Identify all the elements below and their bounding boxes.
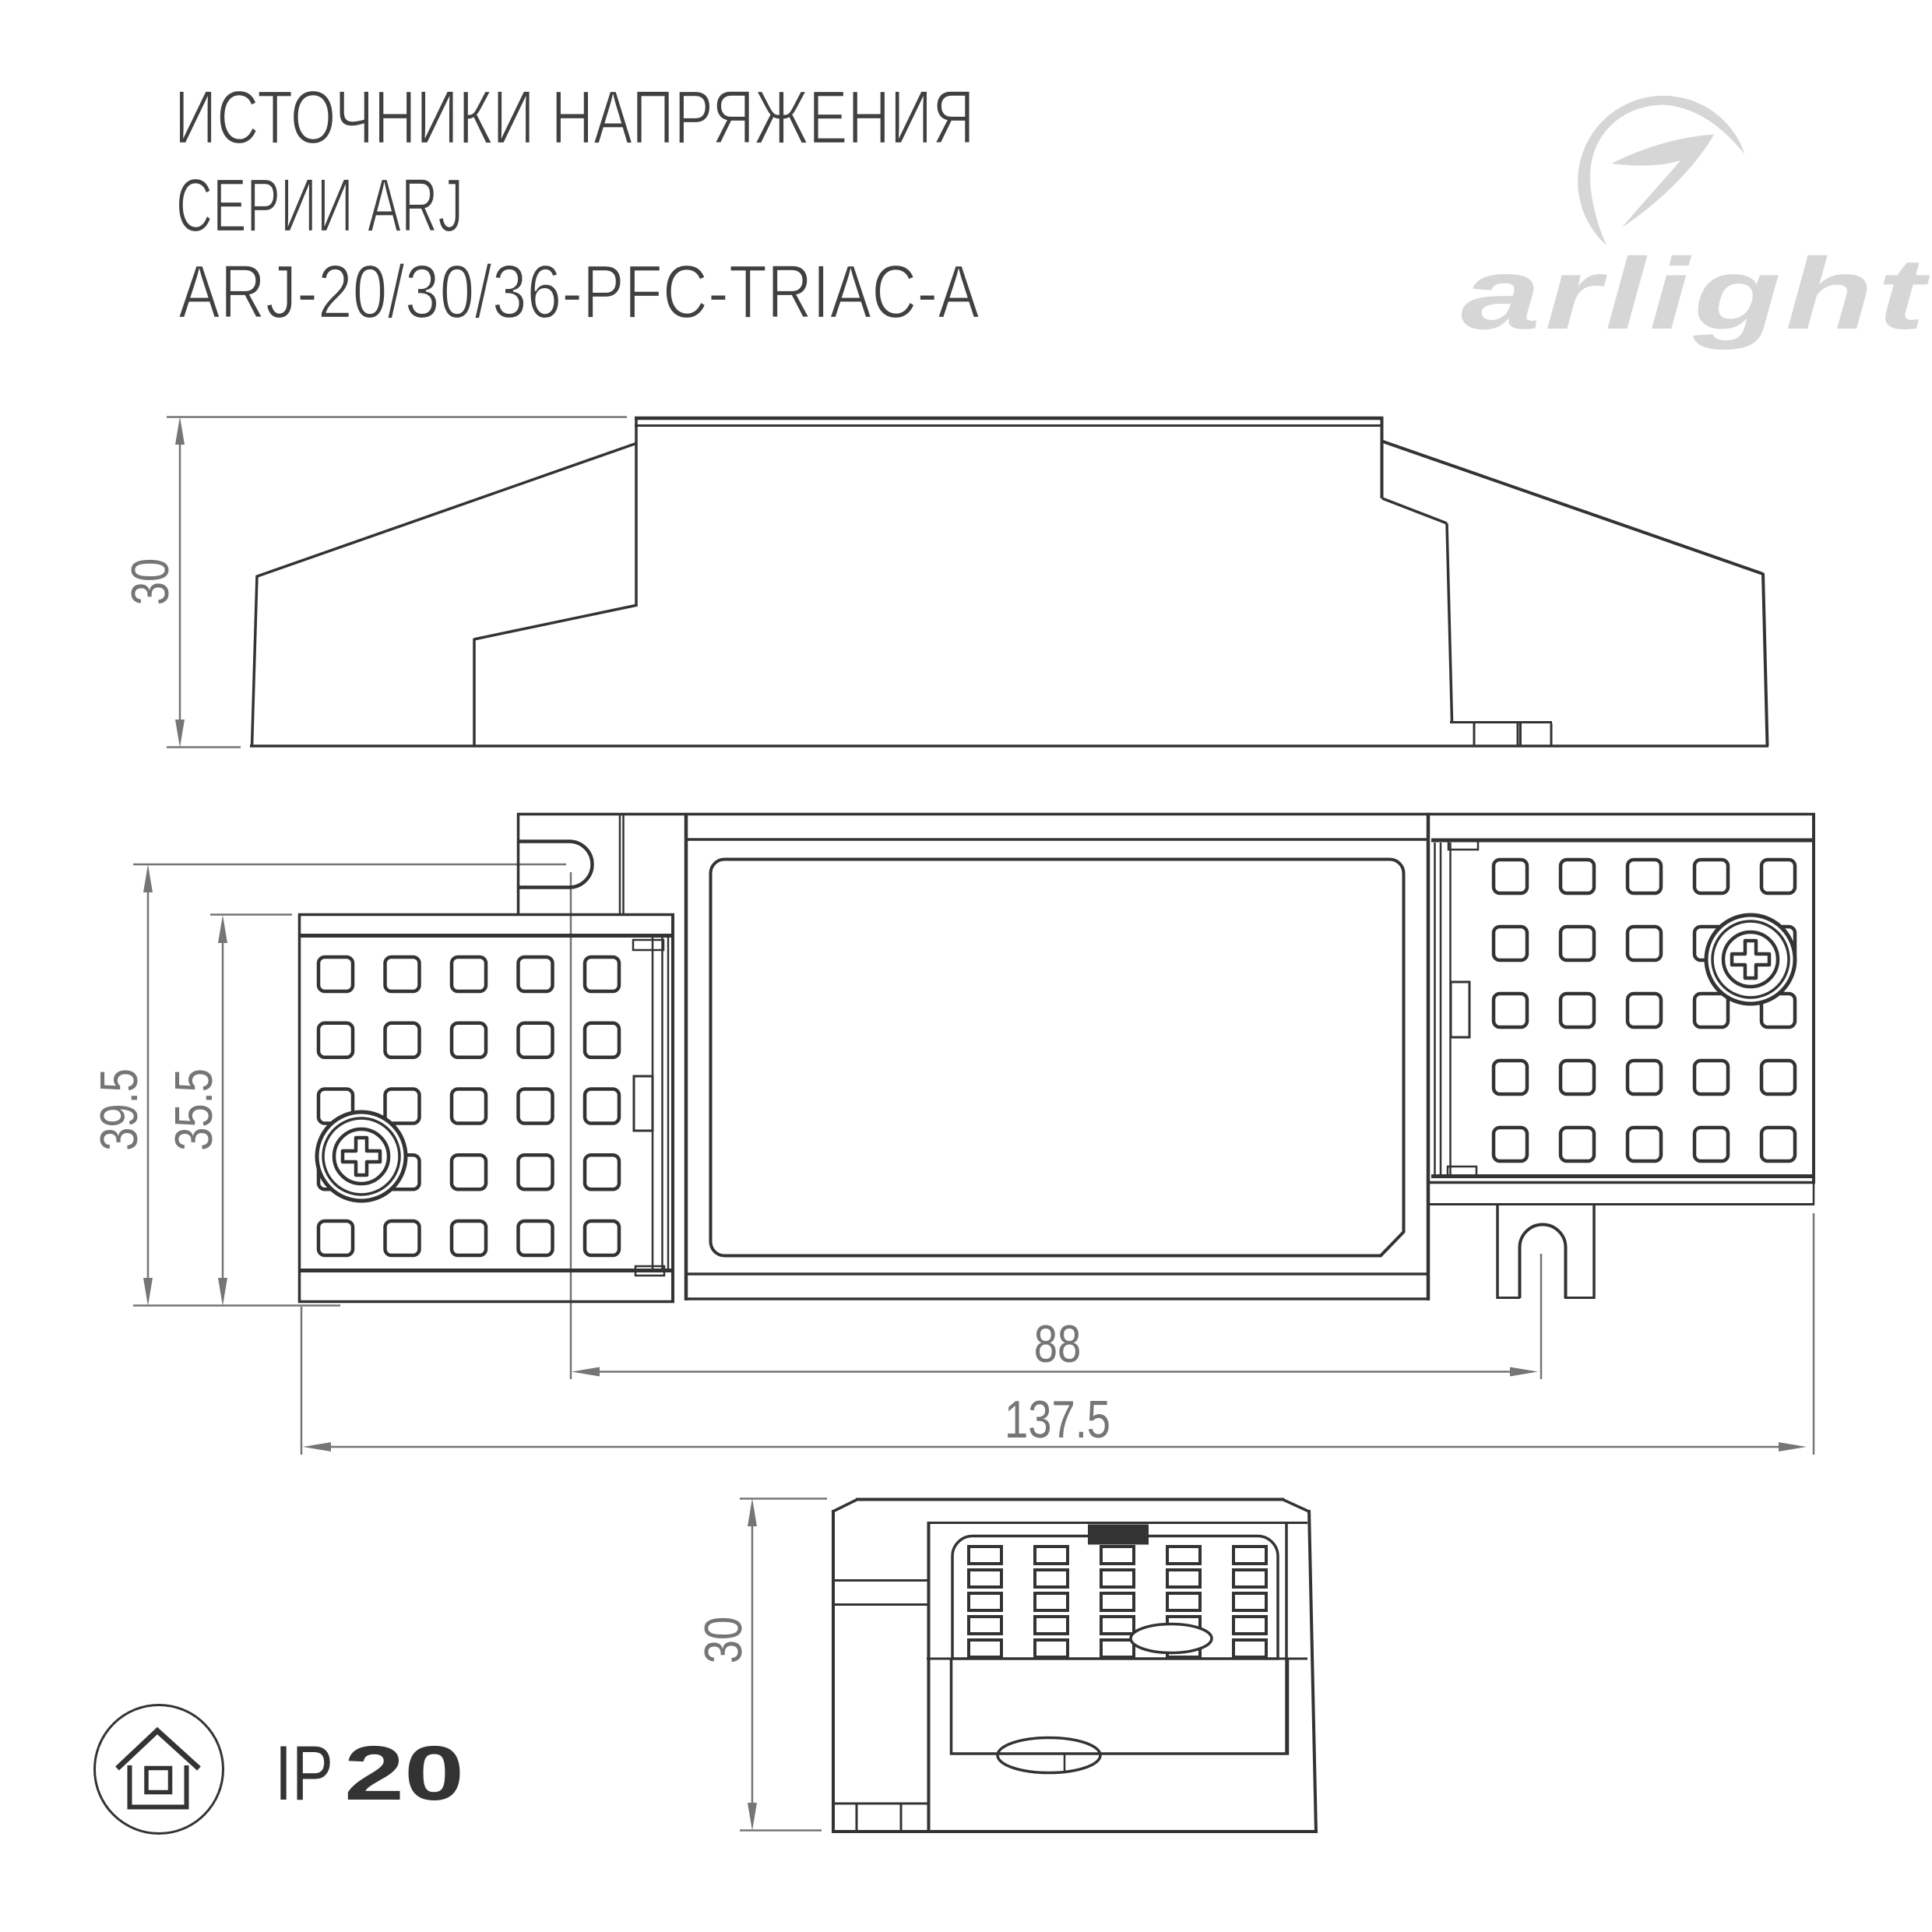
svg-text:ИСТОЧНИКИ НАПРЯЖЕНИЯ: ИСТОЧНИКИ НАПРЯЖЕНИЯ (174, 76, 975, 160)
svg-text:ARJ-20/30/36-PFC-TRIAC-A: ARJ-20/30/36-PFC-TRIAC-A (178, 249, 980, 334)
svg-text:arlight: arlight (1461, 237, 1930, 350)
svg-text:88: 88 (1034, 1314, 1082, 1374)
svg-text:30: 30 (121, 558, 180, 606)
svg-text:СЕРИИ ARJ: СЕРИИ ARJ (176, 163, 463, 248)
svg-text:20: 20 (344, 1730, 464, 1816)
svg-text:137.5: 137.5 (1005, 1390, 1110, 1449)
svg-text:30: 30 (694, 1617, 753, 1664)
svg-text:39.5: 39.5 (90, 1068, 149, 1151)
svg-text:IP: IP (275, 1730, 333, 1816)
svg-text:35.5: 35.5 (164, 1068, 223, 1151)
